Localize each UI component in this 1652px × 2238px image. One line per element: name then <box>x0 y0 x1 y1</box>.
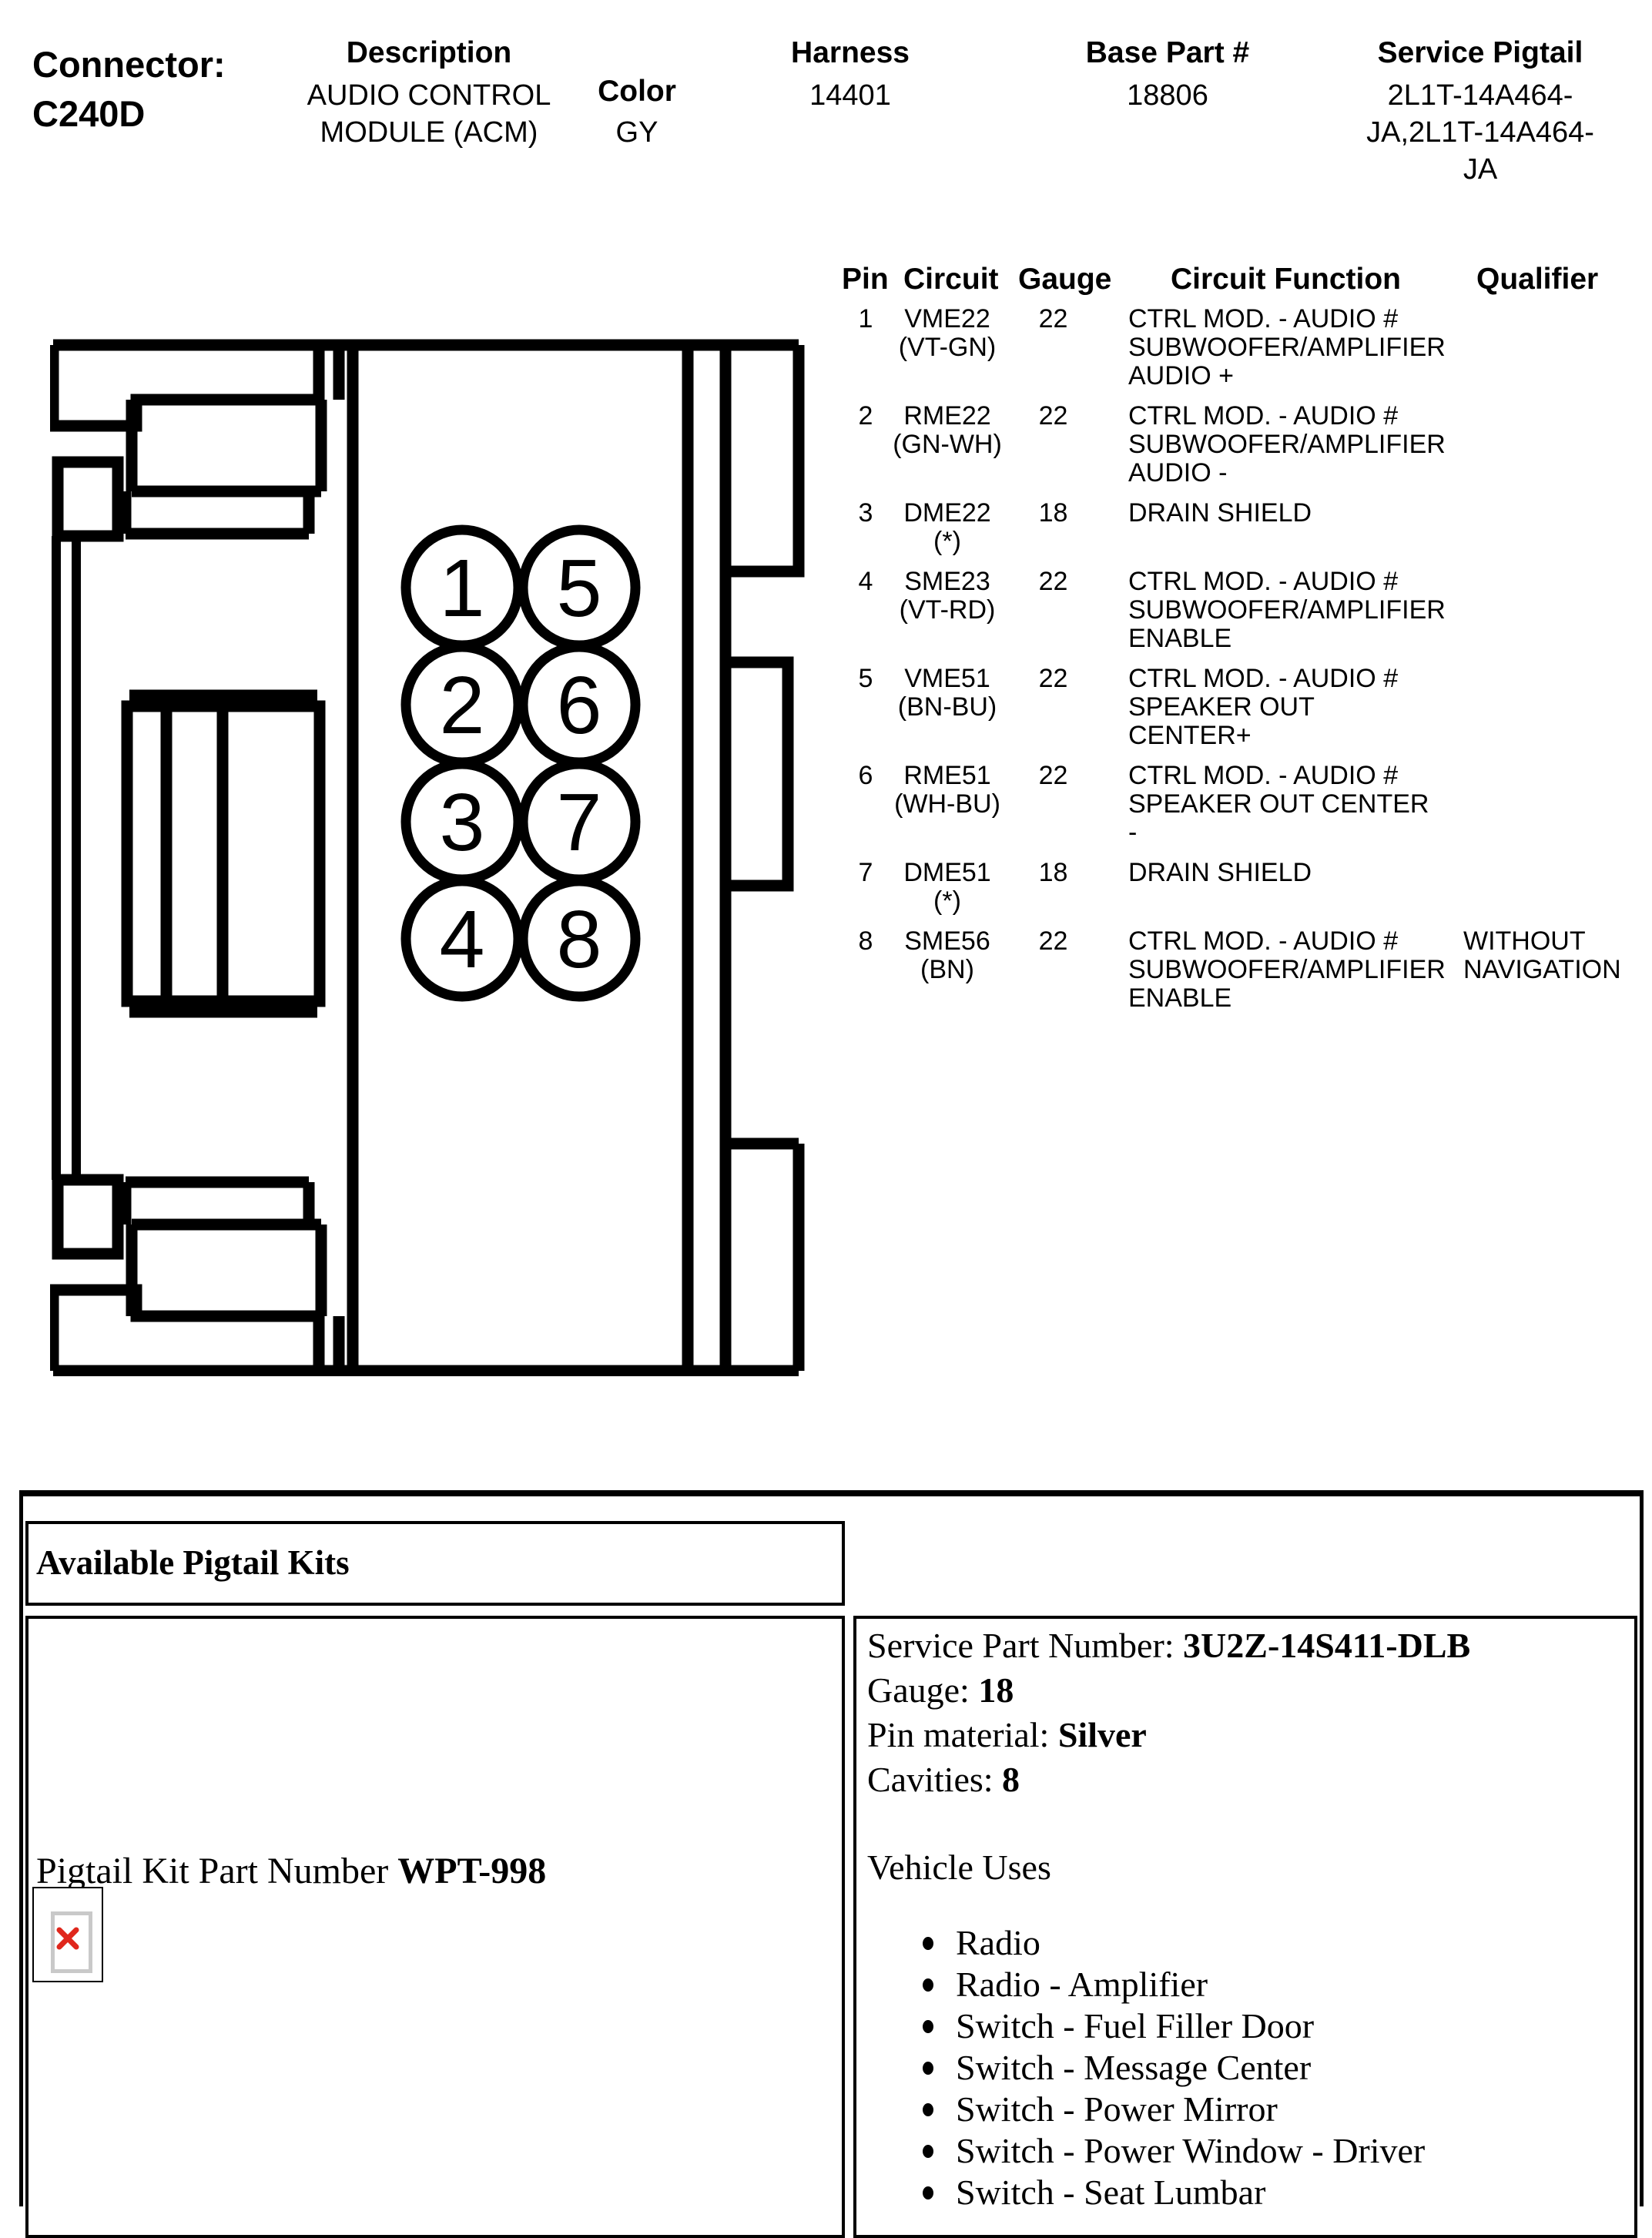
circuit-cell-line: DME22 <box>890 499 1005 528</box>
circuit-cell: DME51(*) <box>890 859 1005 916</box>
pin-number-5: 5 <box>557 543 602 634</box>
pin-cell-line: 5 <box>842 665 890 693</box>
function-cell: CTRL MOD. - AUDIO #SPEAKER OUT CENTER+ <box>1101 665 1436 750</box>
pin-table-row: 7DME51(*)18DRAIN SHIELD <box>842 859 1643 916</box>
field-color: Color GY <box>575 73 699 151</box>
broken-image-icon <box>51 1911 92 1973</box>
circuit-cell-line: SME56 <box>890 927 1005 956</box>
gauge-cell: 22 <box>1005 762 1101 790</box>
circuit-cell-line: DME51 <box>890 859 1005 887</box>
circuit-cell: DME22(*) <box>890 499 1005 556</box>
field-harness: Harness 14401 <box>758 35 943 114</box>
gauge-cell-line: 22 <box>1005 927 1101 956</box>
field-service-pigtail: Service Pigtail 2L1T-14A464- JA,2L1T-14A… <box>1353 35 1607 188</box>
pigtail-kit-label: Pigtail Kit Part Number <box>36 1851 397 1891</box>
gauge-cell: 22 <box>1005 927 1101 956</box>
table-outer-right-border <box>1640 1496 1644 2206</box>
vehicle-uses-title: Vehicle Uses <box>867 1845 1634 1890</box>
gauge-cell-line: 22 <box>1005 665 1101 693</box>
col-header-pin: Pin <box>842 263 889 297</box>
gauge-cell-line: 18 <box>1005 859 1101 887</box>
diagram-bracket-top <box>58 462 118 536</box>
field-value: AUDIO CONTROL <box>275 77 583 114</box>
pin-cell-line: 1 <box>842 305 890 333</box>
field-label: Harness <box>758 35 943 72</box>
pin-cell-line: 3 <box>842 499 890 528</box>
pin-cell: 2 <box>842 402 890 431</box>
function-cell-line: SPEAKER OUT CENTER+ <box>1128 693 1436 750</box>
pin-cell: 5 <box>842 665 890 693</box>
field-label: Service Pigtail <box>1353 35 1607 72</box>
section-divider <box>19 1490 1644 1496</box>
detail-value: 18 <box>978 1670 1014 1710</box>
pin-number-7: 7 <box>557 777 602 868</box>
function-cell-line: DRAIN SHIELD <box>1128 499 1436 528</box>
diagram-comb <box>127 695 320 1012</box>
diagram-latch-top <box>53 345 321 534</box>
gauge-cell-line: 22 <box>1005 305 1101 333</box>
vehicle-use-item: Switch - Power Window - Driver <box>867 2130 1634 2172</box>
pigtail-kit-cell: Pigtail Kit Part Number WPT-998 <box>25 1616 845 2238</box>
function-cell: CTRL MOD. - AUDIO #SUBWOOFER/AMPLIFIEREN… <box>1101 927 1436 1013</box>
field-value: JA <box>1353 151 1607 188</box>
pin-cell: 1 <box>842 305 890 333</box>
table-outer-left-border <box>19 1496 23 2206</box>
function-cell-line: ENABLE <box>1128 984 1436 1013</box>
qualifier-cell: WITHOUTNAVIGATION <box>1436 927 1643 984</box>
circuit-cell: SME56(BN) <box>890 927 1005 984</box>
pin-number-3: 3 <box>440 777 485 868</box>
field-value: JA,2L1T-14A464- <box>1353 114 1607 151</box>
col-header-gauge: Gauge <box>1018 263 1111 297</box>
col-header-qualifier: Qualifier <box>1476 263 1598 297</box>
pin-table-row: 1VME22(VT-GN)22CTRL MOD. - AUDIO #SUBWOO… <box>842 305 1643 390</box>
gauge-cell-line: 22 <box>1005 402 1101 431</box>
pin-number-4: 4 <box>440 894 485 985</box>
circuit-cell-line: (BN) <box>890 956 1005 984</box>
pin-table-row: 8SME56(BN)22CTRL MOD. - AUDIO #SUBWOOFER… <box>842 927 1643 1013</box>
pigtail-kits-title: Available Pigtail Kits <box>36 1543 842 1583</box>
detail-label: Pin material: <box>867 1715 1058 1754</box>
field-value: 2L1T-14A464- <box>1353 77 1607 114</box>
detail-label: Cavities: <box>867 1760 1002 1799</box>
field-label: Description <box>275 35 583 72</box>
detail-pin-material: Pin material: Silver <box>867 1713 1634 1757</box>
circuit-cell-line: (GN-WH) <box>890 431 1005 459</box>
detail-value: Silver <box>1058 1715 1147 1754</box>
function-cell: CTRL MOD. - AUDIO #SUBWOOFER/AMPLIFIEREN… <box>1101 568 1436 653</box>
circuit-cell-line: (BN-BU) <box>890 693 1005 722</box>
detail-service-part-number: Service Part Number: 3U2Z-14S411-DLB <box>867 1623 1634 1668</box>
broken-image-frame <box>32 1887 103 1982</box>
detail-gauge: Gauge: 18 <box>867 1668 1634 1713</box>
function-cell: DRAIN SHIELD <box>1101 499 1436 528</box>
circuit-cell-line: VME51 <box>890 665 1005 693</box>
field-value: MODULE (ACM) <box>275 114 583 151</box>
pin-cell: 4 <box>842 568 890 596</box>
detail-value: 8 <box>1002 1760 1020 1799</box>
pin-table-row: 2RME22(GN-WH)22CTRL MOD. - AUDIO #SUBWOO… <box>842 402 1643 487</box>
vehicle-use-item: Switch - Message Center <box>867 2047 1634 2089</box>
function-cell-line: CTRL MOD. - AUDIO # <box>1128 568 1436 596</box>
vehicle-use-item: Switch - Power Mirror <box>867 2089 1634 2130</box>
pin-table-row: 3DME22(*)18DRAIN SHIELD <box>842 499 1643 556</box>
pin-table-row: 4SME23(VT-RD)22CTRL MOD. - AUDIO #SUBWOO… <box>842 568 1643 653</box>
function-cell: DRAIN SHIELD <box>1101 859 1436 887</box>
function-cell: CTRL MOD. - AUDIO #SUBWOOFER/AMPLIFIERAU… <box>1101 305 1436 390</box>
function-cell-line: SUBWOOFER/AMPLIFIER <box>1128 333 1436 362</box>
pin-table-body: 1VME22(VT-GN)22CTRL MOD. - AUDIO #SUBWOO… <box>842 305 1643 1013</box>
pin-cell-line: 8 <box>842 927 890 956</box>
circuit-cell-line: VME22 <box>890 305 1005 333</box>
service-part-cell: Service Part Number: 3U2Z-14S411-DLB Gau… <box>853 1616 1637 2238</box>
circuit-cell-line: RME51 <box>890 762 1005 790</box>
gauge-cell: 18 <box>1005 859 1101 887</box>
detail-cavities: Cavities: 8 <box>867 1757 1634 1802</box>
vehicle-use-item: Radio <box>867 1922 1634 1964</box>
field-description: Description AUDIO CONTROL MODULE (ACM) <box>275 35 583 151</box>
pin-cell-line: 2 <box>842 402 890 431</box>
gauge-cell-line: 22 <box>1005 762 1101 790</box>
gauge-cell: 22 <box>1005 665 1101 693</box>
pin-cell-line: 4 <box>842 568 890 596</box>
function-cell: CTRL MOD. - AUDIO #SUBWOOFER/AMPLIFIERAU… <box>1101 402 1436 487</box>
circuit-cell: RME22(GN-WH) <box>890 402 1005 459</box>
connector-label: Connector: <box>32 43 226 85</box>
col-header-circuit: Circuit <box>903 263 999 297</box>
pin-cell-line: 6 <box>842 762 890 790</box>
pin-cell: 6 <box>842 762 890 790</box>
function-cell-line: CTRL MOD. - AUDIO # <box>1128 665 1436 693</box>
diagram-bracket-bottom <box>58 1180 118 1254</box>
gauge-cell-line: 18 <box>1005 499 1101 528</box>
field-value: 18806 <box>1052 77 1283 114</box>
gauge-cell: 18 <box>1005 499 1101 528</box>
pigtail-kits-title-box: Available Pigtail Kits <box>25 1521 845 1606</box>
pin-number-6: 6 <box>557 660 602 751</box>
gauge-cell: 22 <box>1005 568 1101 596</box>
detail-label: Gauge: <box>867 1670 978 1710</box>
function-cell-line: ENABLE <box>1128 625 1436 653</box>
circuit-cell-line: (VT-GN) <box>890 333 1005 362</box>
pin-cell: 7 <box>842 859 890 887</box>
detail-value: 3U2Z-14S411-DLB <box>1183 1626 1470 1665</box>
function-cell: CTRL MOD. - AUDIO #SPEAKER OUT CENTER - <box>1101 762 1436 847</box>
function-cell-line: SPEAKER OUT CENTER - <box>1128 790 1436 847</box>
pin-cell: 3 <box>842 499 890 528</box>
vehicle-use-item: Switch - Seat Lumbar <box>867 2172 1634 2213</box>
pin-number-2: 2 <box>440 660 485 751</box>
function-cell-line: SUBWOOFER/AMPLIFIER <box>1128 956 1436 984</box>
vehicle-use-item: Radio - Amplifier <box>867 1964 1634 2005</box>
function-cell-line: AUDIO + <box>1128 362 1436 390</box>
circuit-cell: RME51(WH-BU) <box>890 762 1005 819</box>
circuit-cell: SME23(VT-RD) <box>890 568 1005 625</box>
diagram-left-rails <box>56 536 76 1180</box>
function-cell-line: CTRL MOD. - AUDIO # <box>1128 762 1436 790</box>
pin-number-8: 8 <box>557 894 602 985</box>
field-value: 14401 <box>758 77 943 114</box>
circuit-cell-line: SME23 <box>890 568 1005 596</box>
pin-table-row: 6RME51(WH-BU)22CTRL MOD. - AUDIO #SPEAKE… <box>842 762 1643 847</box>
field-label: Base Part # <box>1052 35 1283 72</box>
function-cell-line: AUDIO - <box>1128 459 1436 487</box>
circuit-cell-line: (*) <box>890 528 1005 556</box>
circuit-cell-line: (VT-RD) <box>890 596 1005 625</box>
detail-label: Service Part Number: <box>867 1626 1183 1665</box>
vehicle-use-item: Switch - Fuel Filler Door <box>867 2005 1634 2047</box>
pin-cell-line: 7 <box>842 859 890 887</box>
gauge-cell: 22 <box>1005 402 1101 431</box>
circuit-cell-line: (WH-BU) <box>890 790 1005 819</box>
connector-id: C240D <box>32 92 145 135</box>
pin-cell: 8 <box>842 927 890 956</box>
field-base-part: Base Part # 18806 <box>1052 35 1283 114</box>
diagram-latch-bottom <box>53 1182 321 1371</box>
pigtail-kit-number: WPT-998 <box>397 1851 546 1891</box>
circuit-cell: VME22(VT-GN) <box>890 305 1005 362</box>
qualifier-cell-line: WITHOUT <box>1463 927 1643 956</box>
function-cell-line: CTRL MOD. - AUDIO # <box>1128 927 1436 956</box>
vehicle-uses-list: RadioRadio - AmplifierSwitch - Fuel Fill… <box>867 1922 1634 2213</box>
gauge-cell-line: 22 <box>1005 568 1101 596</box>
function-cell-line: DRAIN SHIELD <box>1128 859 1436 887</box>
field-label: Color <box>575 73 699 110</box>
pin-table-row: 5VME51(BN-BU)22CTRL MOD. - AUDIO #SPEAKE… <box>842 665 1643 750</box>
gauge-cell: 22 <box>1005 305 1101 333</box>
circuit-cell-line: (*) <box>890 887 1005 916</box>
connector-diagram: 1 5 2 6 3 7 4 8 <box>50 339 809 1376</box>
field-value: GY <box>575 114 699 151</box>
col-header-circuit-function: Circuit Function <box>1171 263 1401 297</box>
pin-number-1: 1 <box>440 543 485 634</box>
circuit-cell: VME51(BN-BU) <box>890 665 1005 722</box>
qualifier-cell-line: NAVIGATION <box>1463 956 1643 984</box>
circuit-cell-line: RME22 <box>890 402 1005 431</box>
function-cell-line: CTRL MOD. - AUDIO # <box>1128 305 1436 333</box>
function-cell-line: CTRL MOD. - AUDIO # <box>1128 402 1436 431</box>
function-cell-line: SUBWOOFER/AMPLIFIER <box>1128 596 1436 625</box>
function-cell-line: SUBWOOFER/AMPLIFIER <box>1128 431 1436 459</box>
pigtail-kit-part-number: Pigtail Kit Part Number WPT-998 <box>36 1850 546 1892</box>
